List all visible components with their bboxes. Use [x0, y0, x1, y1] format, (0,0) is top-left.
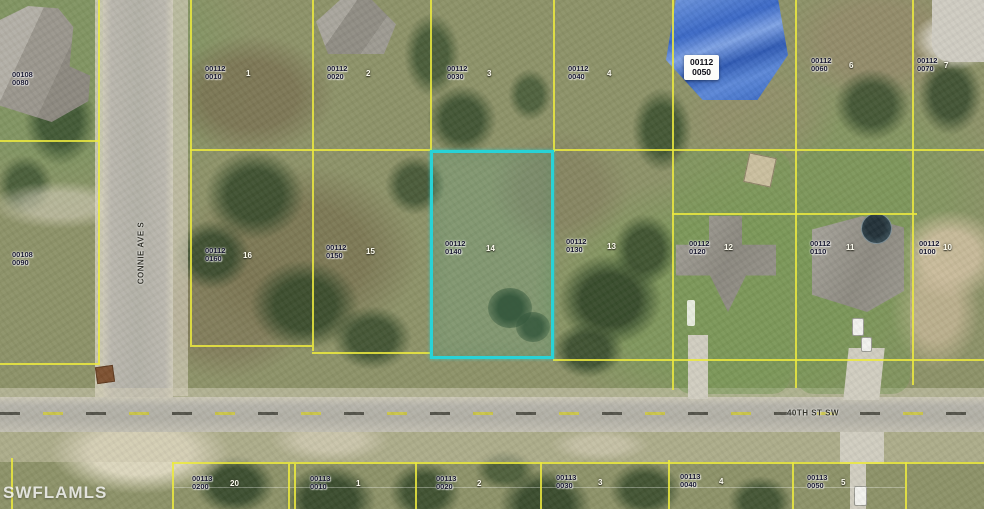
parcel-line [98, 0, 100, 363]
pool [861, 213, 892, 244]
parcel-line [792, 462, 794, 509]
parcel-line [672, 0, 674, 390]
parcel-line [553, 149, 984, 151]
parcel-line [540, 462, 542, 509]
car [852, 318, 864, 336]
parcel-line [0, 140, 98, 142]
parcel-line [190, 149, 432, 151]
connie-ave-road [103, 0, 173, 414]
survey-line [172, 487, 905, 488]
driveway [840, 432, 884, 464]
street-label-connie-ave-s: CONNIE AVE S [137, 222, 146, 284]
parcel-line [288, 464, 290, 509]
street-label-40th-st-sw: 40TH ST SW [787, 409, 839, 418]
driveway [932, 0, 984, 62]
parcel-line [672, 213, 917, 215]
driveway [688, 335, 708, 399]
road-shoulder [172, 0, 188, 396]
road-shoulder [0, 432, 984, 462]
dumpster [95, 365, 115, 384]
parcel-line [312, 0, 314, 351]
parcel-line [172, 462, 984, 464]
parcel-line [0, 363, 100, 365]
highlighted-parcel-boundary [430, 150, 554, 359]
driveway [843, 348, 884, 400]
parcel-line [294, 464, 296, 509]
car [861, 337, 872, 352]
white-object [687, 300, 695, 326]
parcel-line [795, 0, 797, 388]
mls-watermark: SWFLAMLS [3, 483, 107, 503]
parcel-line [172, 462, 174, 509]
parcel-line [190, 0, 192, 345]
parcel-line [912, 0, 914, 385]
car [854, 486, 867, 506]
parcel-line [430, 0, 432, 152]
parcel-line [312, 352, 432, 354]
parcel-line [905, 462, 907, 509]
parcel-line [553, 359, 984, 361]
parcel-line [415, 462, 417, 509]
aerial-parcel-map: 0010800800011200101001120020200112003030… [0, 0, 984, 509]
parcel-line [190, 345, 312, 347]
parcel-line [668, 460, 670, 509]
parcel-line [553, 0, 555, 152]
